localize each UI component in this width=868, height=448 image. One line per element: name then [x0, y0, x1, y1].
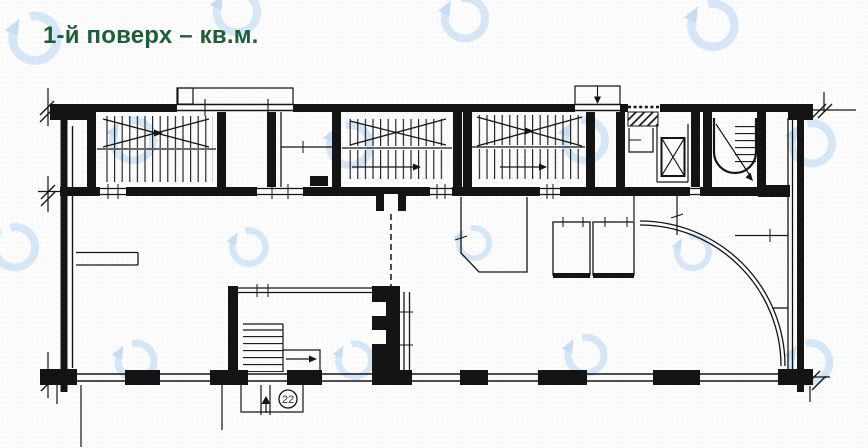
stair-direction-arrow-icon: [309, 356, 317, 363]
stairwell-right: [472, 115, 585, 179]
corridor-wall: [60, 184, 790, 372]
curved-wall-arc: [634, 196, 785, 366]
up-arrow-icon: [262, 396, 271, 404]
entry-arrow-icon: [594, 97, 601, 105]
middle-rooms: [455, 197, 634, 276]
elevator-block: [628, 112, 688, 182]
right-room-partitions: [735, 229, 788, 308]
badge-number: 22: [282, 394, 294, 406]
bottom-stair-room: [233, 284, 413, 376]
top-entry-porch: [575, 86, 620, 111]
door-number-badge: 22: [241, 385, 303, 413]
crenellated-wall: [372, 286, 400, 376]
stairwell-middle: [342, 119, 452, 179]
left-room-partition: [76, 253, 138, 266]
stair-direction-arrow-icon: [746, 173, 754, 182]
top-window-and-balcony: [177, 88, 293, 116]
curved-stair: [714, 118, 756, 181]
stairwell-left: [97, 116, 216, 182]
page: 1-й поверх – кв.м.: [0, 0, 868, 448]
floor-plan-drawing: 22: [0, 0, 868, 448]
upper-room-partitions: [281, 112, 332, 187]
